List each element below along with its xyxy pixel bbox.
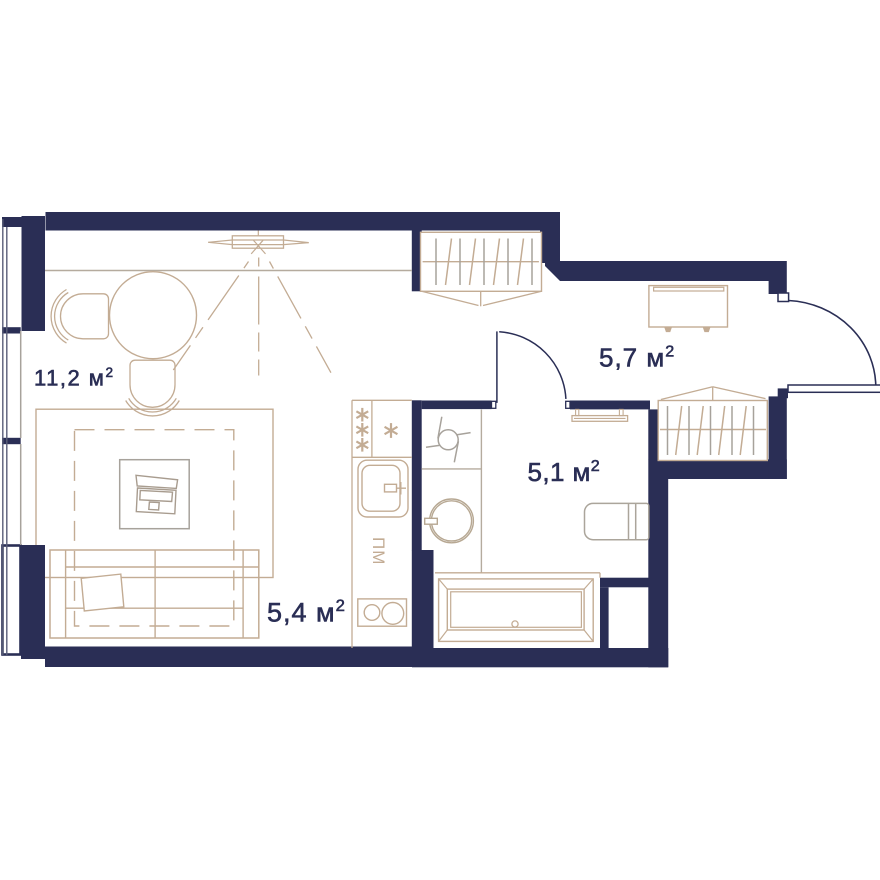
svg-text:11,2 м2: 11,2 м2 [34,365,115,390]
svg-text:5,1 м2: 5,1 м2 [528,457,601,487]
svg-text:ПМ: ПМ [369,537,388,565]
svg-text:5,4 м2: 5,4 м2 [267,596,346,627]
svg-text:5,7 м2: 5,7 м2 [599,343,675,373]
